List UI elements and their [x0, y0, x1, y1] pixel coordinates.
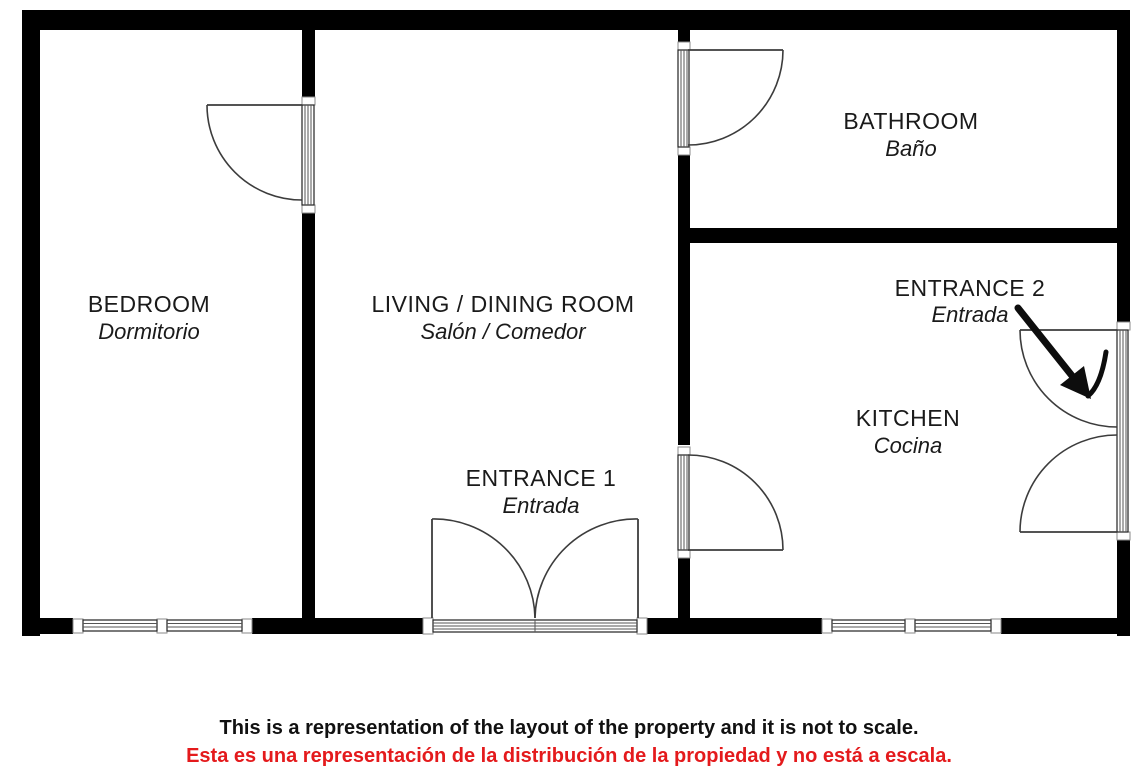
wall-segment [678, 30, 690, 42]
jamb [678, 550, 690, 558]
jamb [242, 619, 252, 633]
jamb [678, 147, 690, 155]
bathroom-door-swing [688, 50, 783, 145]
jamb [637, 618, 647, 634]
wall-segment [678, 558, 690, 618]
entrance2-door-frame [1117, 330, 1128, 532]
entrance2-arrow-icon [1018, 308, 1106, 399]
door-swings [207, 50, 1117, 618]
entrance2-label: ENTRANCE 2 [895, 275, 1046, 301]
wall-segment [252, 618, 423, 634]
bathroom-label: BATHROOM [843, 108, 978, 134]
jamb [1117, 532, 1130, 540]
entrance1-door-frame [433, 620, 637, 632]
wall-segment [1001, 618, 1130, 634]
jamb [822, 619, 832, 633]
bedroom-door-swing [207, 105, 302, 200]
jamb [302, 97, 315, 105]
jamb [157, 619, 167, 633]
kitchen-door-frame [678, 455, 689, 550]
jamb [678, 42, 690, 50]
bathroom-door-frame [678, 50, 689, 147]
disclaimer-text-en: This is a representation of the layout o… [0, 714, 1138, 742]
bedroom-label: BEDROOM [88, 291, 210, 317]
jamb [678, 447, 690, 455]
floor-plan-page: BEDROOM Dormitorio LIVING / DINING ROOM … [0, 0, 1138, 783]
entrance1-door-swing [432, 519, 638, 618]
wall-segment [22, 10, 1130, 30]
jamb [991, 619, 1001, 633]
kitchen-label-es: Cocina [874, 433, 942, 458]
wall-segment [302, 213, 315, 618]
disclaimer-text-es: Esta es una representación de la distrib… [0, 742, 1138, 770]
kitchen-door-swing [688, 455, 783, 550]
wall-segment [678, 155, 690, 445]
wall-segment [302, 30, 315, 97]
entrance1-label: ENTRANCE 1 [466, 465, 617, 491]
wall-segment [22, 10, 40, 636]
bedroom-label-es: Dormitorio [98, 319, 199, 344]
bathroom-label-es: Baño [885, 136, 936, 161]
wall-segment [647, 618, 822, 634]
floor-plan-drawing: BEDROOM Dormitorio LIVING / DINING ROOM … [0, 0, 1138, 700]
kitchen-label: KITCHEN [856, 405, 960, 431]
wall-segment [22, 618, 73, 634]
jamb [302, 205, 315, 213]
living-room-label-es: Salón / Comedor [420, 319, 587, 344]
entrance2-label-es: Entrada [931, 302, 1008, 327]
wall-segment [678, 228, 1130, 243]
jamb [73, 619, 83, 633]
wall-segment [1117, 10, 1130, 322]
living-room-label: LIVING / DINING ROOM [371, 291, 634, 317]
entrance1-label-es: Entrada [502, 493, 579, 518]
jamb [905, 619, 915, 633]
disclaimer: This is a representation of the layout o… [0, 714, 1138, 770]
jamb [423, 618, 433, 634]
bedroom-door-frame [302, 105, 314, 205]
jamb [1117, 322, 1130, 330]
